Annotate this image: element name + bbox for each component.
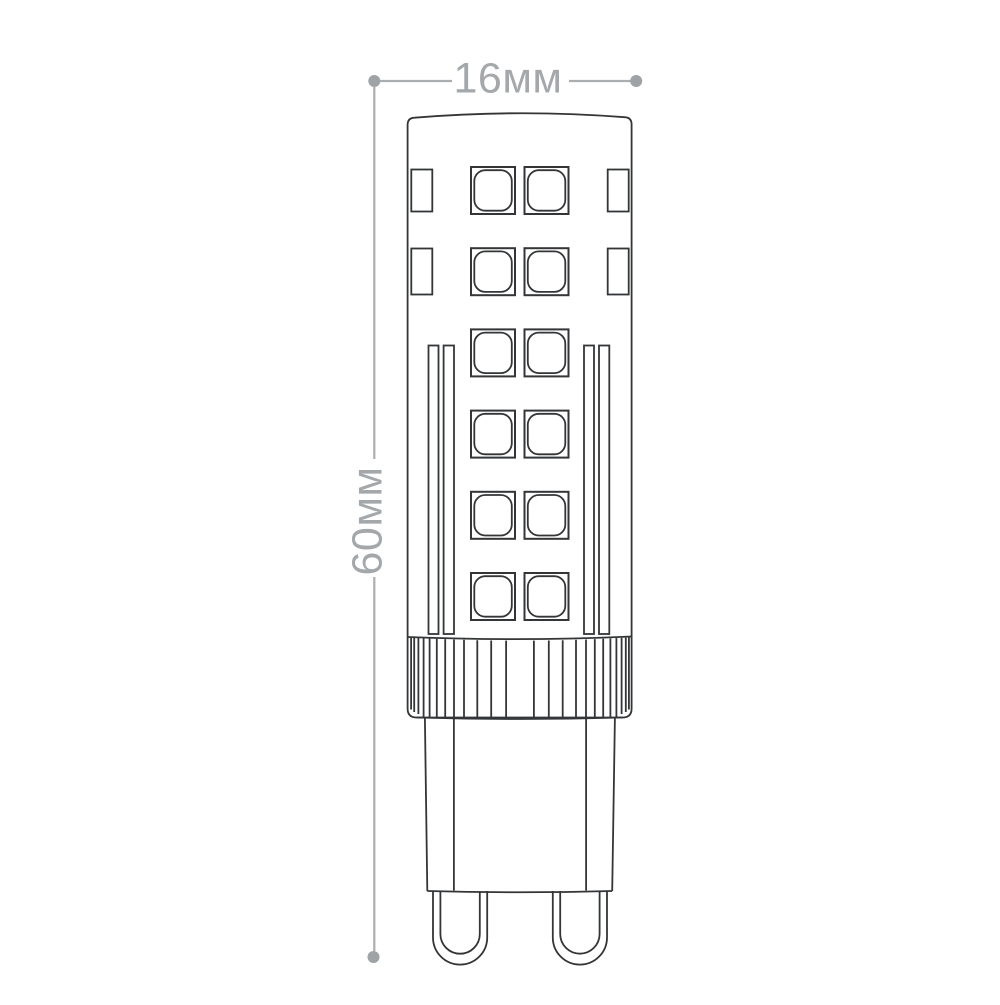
svg-text:60мм: 60мм — [344, 467, 392, 576]
svg-text:16мм: 16мм — [454, 55, 563, 103]
